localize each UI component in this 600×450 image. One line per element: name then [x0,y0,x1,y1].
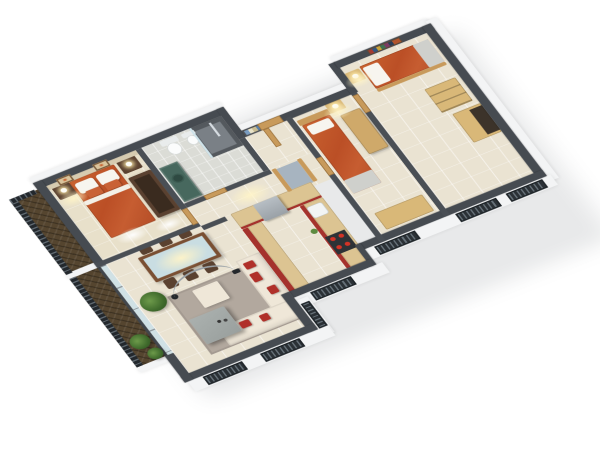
isometric-scene [5,20,600,413]
floor-plan-render [0,0,600,450]
